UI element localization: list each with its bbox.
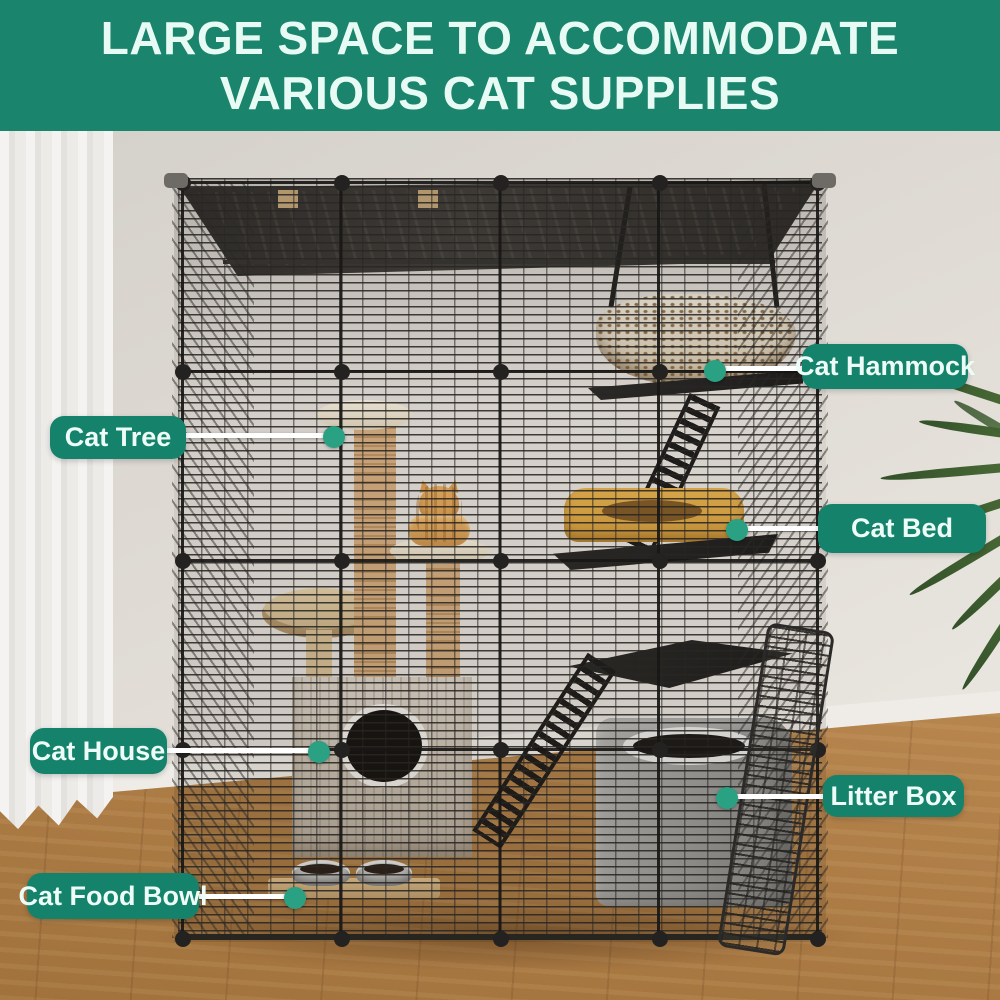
callout-label-cat-tree: Cat Tree <box>50 416 186 459</box>
callout-label-cat-bed: Cat Bed <box>818 504 986 553</box>
callout-line-cat-food-bowl <box>197 894 291 899</box>
callout-line-litter-box <box>732 794 827 799</box>
cat-cage <box>168 172 840 960</box>
callout-line-cat-bed <box>744 526 822 531</box>
callout-dot-cat-bed <box>726 519 748 541</box>
callout-label-cat-hammock: Cat Hammock <box>802 344 968 389</box>
cage-corner-cap <box>812 173 836 188</box>
callout-line-cat-hammock <box>722 366 806 371</box>
callout-label-cat-house: Cat House <box>30 728 167 774</box>
plant-frond <box>880 460 1000 483</box>
cage-panel-frames <box>181 181 820 940</box>
callout-label-cat-food-bowl: Cat Food Bowl <box>27 873 199 919</box>
callout-line-cat-house <box>165 748 313 753</box>
title-line-1: LARGE SPACE TO ACCOMMODATE <box>101 11 899 65</box>
product-infographic: LARGE SPACE TO ACCOMMODATE VARIOUS CAT S… <box>0 0 1000 1000</box>
callout-label-litter-box: Litter Box <box>823 775 964 817</box>
callout-dot-cat-hammock <box>704 360 726 382</box>
title-banner: LARGE SPACE TO ACCOMMODATE VARIOUS CAT S… <box>0 0 1000 131</box>
room-scene <box>0 131 1000 1000</box>
callout-dot-litter-box <box>716 787 738 809</box>
callout-line-cat-tree <box>184 433 328 438</box>
callout-dot-cat-house <box>308 741 330 763</box>
callout-dot-cat-food-bowl <box>284 887 306 909</box>
cage-corner-cap <box>164 173 188 188</box>
callout-dot-cat-tree <box>323 426 345 448</box>
title-line-2: VARIOUS CAT SUPPLIES <box>220 66 780 120</box>
